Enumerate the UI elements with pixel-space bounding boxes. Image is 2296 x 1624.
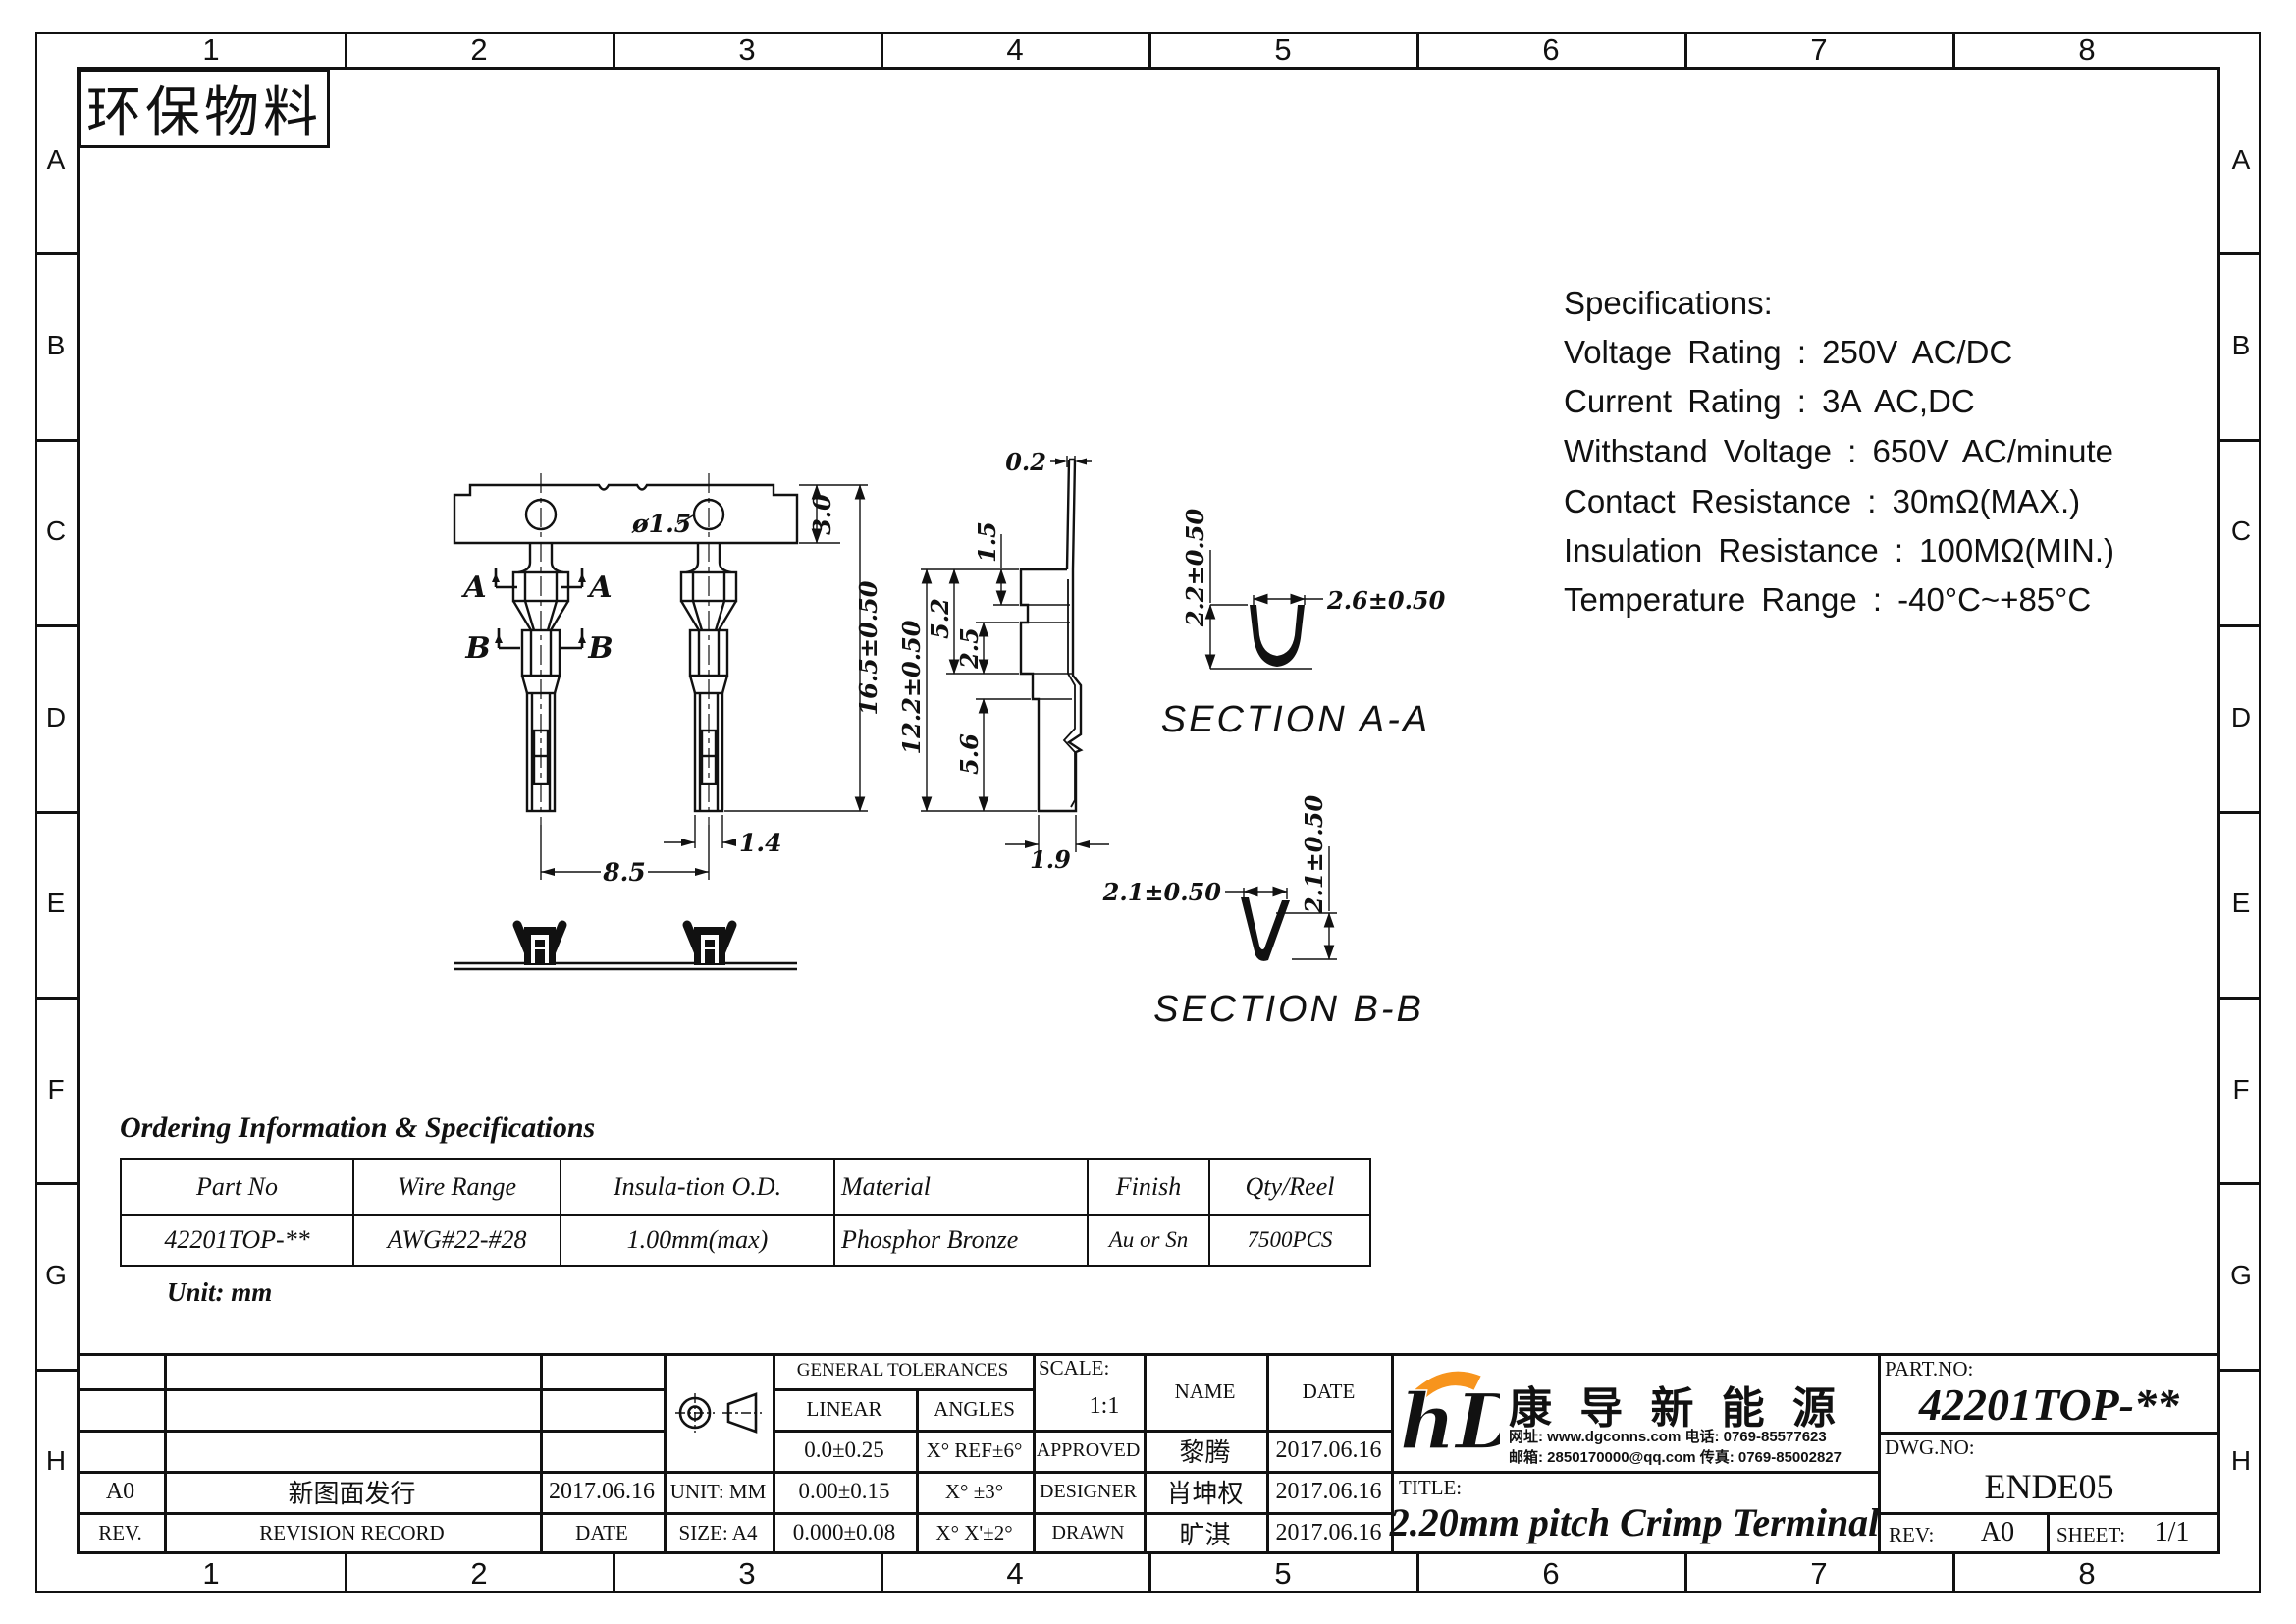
projection-symbol-icon bbox=[673, 1382, 764, 1443]
band-tick bbox=[345, 32, 347, 67]
column-label-top: 5 bbox=[1244, 35, 1322, 65]
band-tick bbox=[35, 997, 77, 1000]
band-tick bbox=[2220, 1369, 2261, 1372]
name-header: NAME bbox=[1144, 1353, 1266, 1430]
tolerances-title: GENERAL TOLERANCES bbox=[773, 1353, 1033, 1388]
svg-text:hD: hD bbox=[1400, 1378, 1500, 1464]
revision-rev-value: A0 bbox=[77, 1471, 164, 1512]
dim-strip-h: 3.0 bbox=[808, 494, 836, 535]
dwgno-label: DWG.NO: bbox=[1885, 1435, 1975, 1460]
terminal-drawing: A A B B ø1.5 3.0 16.5±0.50 8.5 1.4 bbox=[422, 432, 1502, 1090]
band-tick bbox=[1952, 1554, 1955, 1593]
titleblock-line bbox=[1391, 1471, 1878, 1474]
column-label-top: 2 bbox=[440, 35, 518, 65]
band-tick bbox=[1148, 32, 1151, 67]
dwgno-value: ENDE05 bbox=[1878, 1465, 2220, 1508]
section-bb-label: SECTION B-B bbox=[1153, 989, 1424, 1030]
ordering-header-qty: Qty/Reel bbox=[1209, 1159, 1370, 1215]
band-tick bbox=[613, 32, 615, 67]
ordering-value-material: Phosphor Bronze bbox=[834, 1215, 1088, 1266]
row-label-left: B bbox=[37, 330, 75, 361]
row-label-left: E bbox=[37, 888, 75, 919]
band-tick bbox=[35, 1182, 77, 1185]
ordering-value-partno: 42201TOP-** bbox=[121, 1215, 353, 1266]
spec-title: Specifications: bbox=[1564, 285, 2212, 334]
band-tick bbox=[2220, 439, 2261, 442]
column-label-bottom: 1 bbox=[172, 1557, 250, 1591]
ordering-header-material: Material bbox=[834, 1159, 1088, 1215]
column-label-top: 3 bbox=[708, 35, 786, 65]
revision-date-header: DATE bbox=[540, 1512, 664, 1553]
end-view bbox=[454, 925, 797, 969]
dim-bb-depth: 2.1±0.50 bbox=[1300, 795, 1328, 915]
row-label-right: G bbox=[2222, 1260, 2260, 1291]
dim-side-1-5: 1.5 bbox=[973, 521, 1001, 563]
ordering-value-wirerange: AWG#22-#28 bbox=[353, 1215, 561, 1266]
rev-value: A0 bbox=[1949, 1512, 2047, 1553]
tolerances-linear-header: LINEAR bbox=[773, 1388, 916, 1430]
dim-aa-width: 2.6±0.50 bbox=[1326, 586, 1446, 615]
ordering-value-qty: 7500PCS bbox=[1209, 1215, 1370, 1266]
band-tick bbox=[35, 624, 77, 627]
section-bb-view: 2.1±0.50 2.1±0.50 SECTION B-B bbox=[1102, 795, 1424, 1030]
row-label-left: D bbox=[37, 702, 75, 733]
column-label-bottom: 3 bbox=[708, 1557, 786, 1591]
band-tick bbox=[345, 1554, 347, 1593]
ordering-header-wirerange: Wire Range bbox=[353, 1159, 561, 1215]
band-tick bbox=[2220, 811, 2261, 814]
drawn-name: 旷淇 bbox=[1144, 1512, 1266, 1553]
ordering-header-partno: Part No bbox=[121, 1159, 353, 1215]
band-tick bbox=[2220, 997, 2261, 1000]
band-tick bbox=[35, 811, 77, 814]
side-view bbox=[1021, 460, 1081, 811]
dim-side-base-w: 1.9 bbox=[1030, 845, 1071, 874]
section-b-letter: B bbox=[587, 631, 613, 666]
row-label-right: B bbox=[2222, 330, 2260, 361]
date-header: DATE bbox=[1266, 1353, 1391, 1430]
drawn-label: DRAWN bbox=[1033, 1512, 1144, 1553]
row-label-left: C bbox=[37, 515, 75, 547]
titleblock-line bbox=[2047, 1512, 2050, 1554]
dim-overall-h: 16.5±0.50 bbox=[854, 580, 882, 715]
unit-note: Unit: mm bbox=[167, 1277, 272, 1308]
scale-label: SCALE: bbox=[1039, 1356, 1109, 1380]
front-dimensions bbox=[541, 485, 868, 880]
tolerance-linear-3: 0.000±0.08 bbox=[773, 1512, 916, 1553]
spec-line: Voltage Rating : 250V AC/DC bbox=[1564, 334, 2212, 383]
column-label-bottom: 7 bbox=[1780, 1557, 1858, 1591]
tolerances-angles-header: ANGLES bbox=[916, 1388, 1033, 1430]
column-label-bottom: 6 bbox=[1512, 1557, 1590, 1591]
tolerance-angle-3: X° X'±2° bbox=[916, 1512, 1033, 1553]
dim-bb-width: 2.1±0.50 bbox=[1102, 878, 1222, 906]
tolerance-linear-2: 0.00±0.15 bbox=[773, 1471, 916, 1512]
column-label-bottom: 5 bbox=[1244, 1557, 1322, 1591]
dim-aa-height: 2.2±0.50 bbox=[1181, 509, 1209, 628]
side-dimensions bbox=[921, 456, 1109, 852]
designer-name: 肖坤权 bbox=[1144, 1471, 1266, 1512]
scale-value: 1:1 bbox=[1065, 1390, 1144, 1422]
sheet-value: 1/1 bbox=[2125, 1512, 2218, 1553]
row-label-right: C bbox=[2222, 515, 2260, 547]
spec-line: Temperature Range : -40°C~+85°C bbox=[1564, 581, 2212, 630]
drawing-sheet: 1 2 3 4 5 6 7 8 1 2 3 4 5 6 7 8 A B C D … bbox=[0, 0, 2296, 1624]
drawn-date: 2017.06.16 bbox=[1266, 1512, 1391, 1553]
spec-line: Contact Resistance : 30mΩ(MAX.) bbox=[1564, 483, 2212, 532]
revision-date-value: 2017.06.16 bbox=[540, 1471, 664, 1512]
titleblock-line bbox=[1878, 1432, 2220, 1435]
section-aa-label: SECTION A-A bbox=[1161, 699, 1430, 740]
band-tick bbox=[35, 252, 77, 255]
band-tick bbox=[35, 439, 77, 442]
dim-tab-t: 0.2 bbox=[1005, 448, 1046, 476]
band-tick bbox=[1684, 32, 1687, 67]
approved-date: 2017.06.16 bbox=[1266, 1430, 1391, 1471]
row-label-right: D bbox=[2222, 702, 2260, 733]
ordering-table: Part No Wire Range Insula-tion O.D. Mate… bbox=[120, 1158, 1371, 1267]
dim-side-2-5: 2.5 bbox=[955, 627, 984, 670]
row-label-left: G bbox=[37, 1260, 75, 1291]
row-label-left: F bbox=[37, 1074, 75, 1106]
row-label-right: H bbox=[2222, 1445, 2260, 1477]
revision-rev-header: REV. bbox=[77, 1512, 164, 1553]
ordering-value-finish: Au or Sn bbox=[1088, 1215, 1209, 1266]
rev-label: REV: bbox=[1889, 1523, 1934, 1547]
band-tick bbox=[35, 1369, 77, 1372]
tolerance-angle-2: X° ±3° bbox=[916, 1471, 1033, 1512]
row-label-left: A bbox=[37, 144, 75, 176]
band-tick bbox=[881, 1554, 883, 1593]
band-tick bbox=[1416, 32, 1419, 67]
company-logo-icon: hD bbox=[1398, 1362, 1500, 1464]
designer-date: 2017.06.16 bbox=[1266, 1471, 1391, 1512]
section-a-letter: A bbox=[586, 570, 612, 605]
dim-side-5-6: 5.6 bbox=[955, 733, 984, 775]
company-contact-line2: 邮箱: 2850170000@qq.com 传真: 0769-85002827 bbox=[1509, 1446, 1842, 1467]
dim-tip-w: 1.4 bbox=[739, 829, 782, 857]
size-cell: SIZE: A4 bbox=[664, 1512, 773, 1553]
band-tick bbox=[1952, 32, 1955, 67]
tolerance-angle-1: X° REF±6° bbox=[916, 1430, 1033, 1471]
revision-record-value: 新图面发行 bbox=[164, 1471, 540, 1512]
company-contact-line1: 网址: www.dgconns.com 电话: 0769-85577623 bbox=[1509, 1426, 1827, 1446]
spec-line: Insulation Resistance : 100MΩ(MIN.) bbox=[1564, 532, 2212, 581]
band-tick bbox=[2220, 1182, 2261, 1185]
dim-side-5-2: 5.2 bbox=[926, 598, 954, 639]
spec-line: Current Rating : 3A AC,DC bbox=[1564, 383, 2212, 432]
row-label-left: H bbox=[37, 1445, 75, 1477]
section-a-letter: A bbox=[460, 570, 486, 605]
section-b-letter: B bbox=[464, 631, 490, 666]
column-label-bottom: 4 bbox=[976, 1557, 1054, 1591]
dim-pitch: 8.5 bbox=[602, 858, 646, 887]
column-label-bottom: 8 bbox=[2048, 1557, 2126, 1591]
band-tick bbox=[1148, 1554, 1151, 1593]
band-tick bbox=[1416, 1554, 1419, 1593]
column-label-top: 6 bbox=[1512, 35, 1590, 65]
row-label-right: A bbox=[2222, 144, 2260, 176]
unit-cell: UNIT: MM bbox=[664, 1471, 773, 1512]
ordering-header-finish: Finish bbox=[1088, 1159, 1209, 1215]
band-tick bbox=[1684, 1554, 1687, 1593]
spec-line: Withstand Voltage : 650V AC/minute bbox=[1564, 433, 2212, 482]
designer-label: DESIGNER bbox=[1033, 1471, 1144, 1512]
approved-label: APPROVED bbox=[1033, 1430, 1144, 1471]
ordering-title: Ordering Information & Specifications bbox=[120, 1111, 595, 1145]
band-tick bbox=[613, 1554, 615, 1593]
section-aa-view: 2.2±0.50 2.6±0.50 SECTION A-A bbox=[1161, 509, 1446, 740]
column-label-top: 4 bbox=[976, 35, 1054, 65]
partno-value: 42201TOP-** bbox=[1878, 1379, 2220, 1430]
band-tick bbox=[881, 32, 883, 67]
row-label-right: F bbox=[2222, 1074, 2260, 1106]
ordering-header-insulation: Insula-tion O.D. bbox=[561, 1159, 834, 1215]
band-tick bbox=[2220, 252, 2261, 255]
column-label-top: 7 bbox=[1780, 35, 1858, 65]
column-label-top: 8 bbox=[2048, 35, 2126, 65]
eco-material-stamp: 环保物料 bbox=[79, 69, 330, 148]
section-marks bbox=[492, 568, 586, 648]
ordering-value-insulation: 1.00mm(max) bbox=[561, 1215, 834, 1266]
column-label-bottom: 2 bbox=[440, 1557, 518, 1591]
band-tick bbox=[2220, 624, 2261, 627]
dim-hole-dia: ø1.5 bbox=[631, 510, 691, 538]
sheet-label: SHEET: bbox=[2056, 1523, 2125, 1547]
column-label-top: 1 bbox=[172, 35, 250, 65]
dim-side-overall: 12.2±0.50 bbox=[897, 620, 926, 754]
revision-record-header: REVISION RECORD bbox=[164, 1512, 540, 1553]
row-label-right: E bbox=[2222, 888, 2260, 919]
tolerance-linear-1: 0.0±0.25 bbox=[773, 1430, 916, 1471]
approved-name: 黎腾 bbox=[1144, 1430, 1266, 1471]
drawing-title: 2.20mm pitch Crimp Terminal bbox=[1394, 1496, 1875, 1547]
